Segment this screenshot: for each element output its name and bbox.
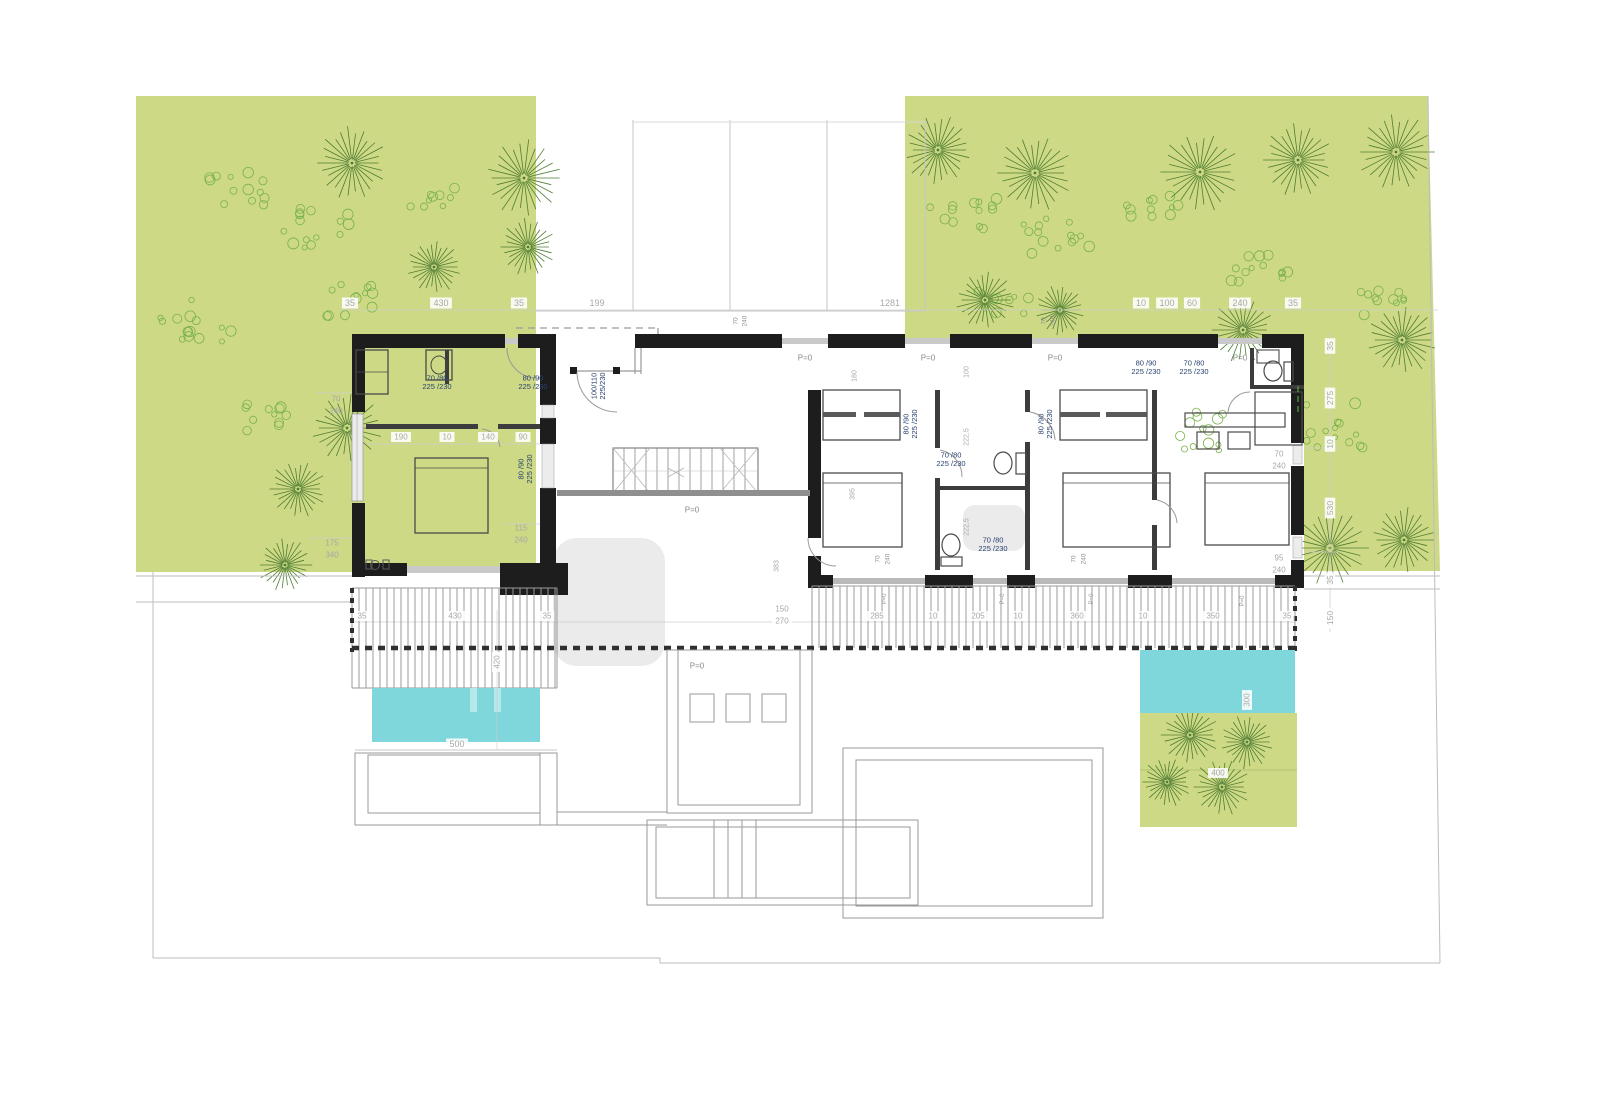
wardrobe-rail <box>864 412 900 417</box>
toilet-bowl <box>942 534 960 556</box>
dim-label: 10 <box>1136 611 1151 621</box>
wall-top <box>352 334 505 348</box>
bed <box>823 473 902 547</box>
door-post <box>570 367 577 374</box>
window-band <box>542 405 554 418</box>
dim-label: 70 <box>1041 317 1048 325</box>
dim-label-text: 70 <box>332 395 341 404</box>
dim-label-text: 35 <box>1288 298 1298 308</box>
tree-center <box>1401 339 1404 342</box>
dim-label: 10 <box>1011 611 1026 621</box>
level-label: P=0 <box>1000 593 1006 605</box>
dim-label: 199 <box>586 298 608 309</box>
level-label-text: P=0 <box>1233 354 1248 363</box>
door-spec-label-text: 225/230 <box>598 372 607 399</box>
dim-label-text: 350 <box>1206 612 1220 621</box>
dim-label-text: 35 <box>514 298 524 308</box>
dim-label: 175 <box>325 539 339 548</box>
window-band <box>1035 578 1128 584</box>
level-label-text: P=0 <box>685 506 700 515</box>
window-band <box>542 444 554 488</box>
dim-label-text: 70 <box>875 555 882 563</box>
tree-center <box>937 149 940 152</box>
window-band <box>1032 338 1078 344</box>
dim-label-text: 70 <box>1071 555 1078 563</box>
dim-label-text: 222,5 <box>964 518 971 536</box>
pool-right <box>1140 650 1295 713</box>
dim-label-text: 150 <box>775 605 789 614</box>
dim-label: 70 <box>332 395 341 404</box>
dim-label-text: 285 <box>870 612 884 621</box>
dim-label-text: 180 <box>852 370 859 382</box>
door-spec-label-text: 225 /230 <box>1179 367 1208 376</box>
dim-label: 70 <box>1275 450 1284 459</box>
dim-label-text: 222,5 <box>964 428 971 446</box>
dim-label: 240 <box>1081 553 1088 564</box>
door-spec-label: 70 /80225 /230 <box>422 374 451 392</box>
dim-label-text: 100 <box>964 366 971 378</box>
wall-top <box>1078 334 1218 348</box>
level-label-text: P=0 <box>690 662 705 671</box>
floor-plan-canvas: 3543035199128110100602403535275105303515… <box>0 0 1600 1112</box>
dim-label: 180 <box>852 370 859 382</box>
door-spec-label-text: 225 /230 <box>910 409 919 438</box>
partition-wall <box>1152 390 1157 500</box>
wardrobe-rail <box>1106 412 1147 417</box>
courtyard-outline <box>678 650 800 805</box>
dim-label-text: 35 <box>1283 612 1292 621</box>
door-arc <box>1157 500 1177 523</box>
tree-center <box>984 299 987 302</box>
dim-label: 500 <box>446 739 468 750</box>
wall-leftwing-right <box>540 418 556 444</box>
dim-label: 35 <box>1285 298 1301 309</box>
dim-label: 95 <box>1275 554 1284 563</box>
dim-label: 222,5 <box>964 518 971 536</box>
dim-label: 240 <box>1229 298 1251 309</box>
window-band <box>1218 338 1262 344</box>
lower-outline <box>843 748 1103 918</box>
dim-label-text: 10 <box>1014 612 1023 621</box>
shrub-mark <box>1203 425 1213 435</box>
door-spec-label-text: 225 /230 <box>1131 367 1160 376</box>
stool <box>1228 432 1250 449</box>
dim-label-text: 240 <box>742 315 749 326</box>
dim-label: 190 <box>391 432 411 442</box>
dim-label: 1281 <box>876 298 903 309</box>
dim-label: 240 <box>1272 566 1286 575</box>
dim-label-text: 70 <box>733 317 740 325</box>
tree-center <box>1199 171 1202 174</box>
dim-label-text: 70 <box>1041 317 1048 325</box>
tree-center <box>297 488 300 491</box>
dim-label: 240 <box>329 407 343 416</box>
dim-label: 350 <box>1203 611 1223 621</box>
dim-label-text: 270 <box>775 617 789 626</box>
dim-label-text: 199 <box>589 298 604 308</box>
dim-label-text: 175 <box>325 539 339 548</box>
dim-label: 360 <box>1067 611 1087 621</box>
level-label: P=0 <box>1240 595 1246 607</box>
dim-label: 285 <box>867 611 887 621</box>
dim-label: 90 <box>516 432 531 442</box>
planter-square <box>726 694 750 722</box>
bed <box>1205 473 1289 545</box>
dim-label: 10 <box>1325 436 1336 452</box>
window-band <box>505 338 518 344</box>
dim-label-text: 35 <box>1325 575 1335 585</box>
garden-right <box>905 96 1440 571</box>
dim-label-text: 300 <box>1243 693 1252 707</box>
dim-label-text: 10 <box>929 612 938 621</box>
dim-label: 35 <box>355 611 370 621</box>
door-spec-label-text: 225 /230 <box>422 382 451 391</box>
tree-center <box>1189 734 1192 737</box>
dim-label: 115 <box>515 524 528 533</box>
door-spec-label-text: 225 /230 <box>1045 409 1054 438</box>
dim-label: 35 <box>342 298 358 309</box>
lower-outline <box>656 827 910 898</box>
wall-top <box>828 334 905 348</box>
level-label-text: P=0 <box>882 593 888 605</box>
dim-label-text: 240 <box>1081 553 1088 564</box>
dim-label: 70 <box>875 555 882 563</box>
dim-label: 60 <box>1184 298 1200 309</box>
dim-label-text: 150 <box>1325 611 1335 625</box>
dim-label: 383 <box>774 560 781 572</box>
tree-center <box>523 177 526 180</box>
dim-label: 240 <box>885 553 892 564</box>
level-label: P=0 <box>690 662 705 671</box>
level-label-text: P=0 <box>1089 593 1095 605</box>
dim-label-text: 95 <box>1275 554 1284 563</box>
partition-wall <box>1250 385 1304 389</box>
level-label: P=0 <box>1233 354 1248 363</box>
dim-label-text: 90 <box>519 433 528 442</box>
door-spec-label: 80 /90225 /230 <box>1131 359 1160 377</box>
deck-boards-left <box>352 588 555 688</box>
level-label: P=0 <box>685 506 700 515</box>
dim-label-text: 115 <box>515 524 528 533</box>
tree-center <box>1034 172 1037 175</box>
dim-label-text: 240 <box>885 553 892 564</box>
tree-center <box>1166 781 1169 784</box>
dim-label-text: 10 <box>1139 612 1148 621</box>
dim-label-text: 35 <box>1325 341 1335 351</box>
dim-label-text: 340 <box>325 551 339 560</box>
door-spec-label-text: 225 /230 <box>518 382 547 391</box>
window-band <box>905 338 950 344</box>
dim-label-text: 240 <box>514 536 528 545</box>
window-band <box>782 338 828 344</box>
dim-label-text: 35 <box>543 612 552 621</box>
shrub-mark <box>1181 446 1187 452</box>
shrub-mark <box>1212 414 1223 425</box>
tree-center <box>433 266 436 269</box>
dim-label-text: 35 <box>358 612 367 621</box>
door-spec-label: 80 /90225 /230 <box>517 454 535 483</box>
wall-leftwing-right <box>540 488 556 565</box>
door-spec-label: 70 /80225 /230 <box>936 451 965 469</box>
shrub-mark <box>1176 431 1185 440</box>
toilet-tank <box>1016 453 1026 474</box>
door-spec-label: 80 /90225 /230 <box>902 409 920 438</box>
stool <box>1197 432 1219 449</box>
dim-label: 430 <box>430 298 452 309</box>
dim-label: 430 <box>445 611 465 621</box>
toilet-bowl <box>994 452 1012 474</box>
window-band <box>1172 578 1275 584</box>
tree-center <box>1395 151 1398 154</box>
door-spec-label: 100/110225/230 <box>590 372 608 399</box>
level-label: P=0 <box>882 593 888 605</box>
wall-right <box>1291 466 1304 535</box>
window-band <box>833 578 925 584</box>
wardrobe-rail <box>823 412 856 417</box>
dim-label: 420 <box>492 652 502 672</box>
floorplan-image: Residential villa ground floor plan with… <box>0 0 1600 1112</box>
door-spec-label: 80 /90225 /230 <box>1037 409 1055 438</box>
dim-label-text: 530 <box>1325 501 1335 515</box>
partition-wall <box>935 478 940 570</box>
dim-label-text: 35 <box>345 298 355 308</box>
dim-label: 35 <box>511 298 527 309</box>
door-arc <box>1228 392 1250 412</box>
shrub-mark <box>1190 444 1196 450</box>
dim-label-text: 140 <box>481 433 495 442</box>
dim-label-text: 240 <box>1232 298 1247 308</box>
partition-wall <box>366 424 478 429</box>
dim-label-text: 100 <box>1159 298 1174 308</box>
toilet-bowl <box>1264 361 1282 381</box>
dim-label: 70 <box>733 317 740 325</box>
dim-label: 275 <box>1325 388 1336 409</box>
dim-label-text: 1281 <box>880 298 900 308</box>
wall-top <box>1262 334 1304 348</box>
partition-wall <box>1025 390 1030 412</box>
tree-center <box>1246 741 1249 744</box>
dim-label: 530 <box>1325 498 1336 519</box>
tree-center <box>1221 786 1224 789</box>
pool-ladder <box>470 688 477 712</box>
dim-label: 10 <box>440 432 455 442</box>
dim-label: 100 <box>964 366 971 378</box>
level-label: P=0 <box>1089 593 1095 605</box>
pool-left <box>372 688 540 742</box>
wall-top <box>518 334 556 348</box>
door-spec-label: 80 /90225 /230 <box>518 374 547 392</box>
tree-center <box>527 246 530 249</box>
dim-label: 35 <box>1325 572 1336 588</box>
dim-label: 35 <box>1280 611 1295 621</box>
toilet-tank <box>941 557 962 566</box>
dim-label: 270 <box>772 616 792 626</box>
wall-left <box>352 334 365 412</box>
wall-top <box>950 334 1032 348</box>
door-spec-label-text: 225 /230 <box>978 544 1007 553</box>
tree-center <box>1242 329 1245 332</box>
partition-wall <box>1250 348 1254 388</box>
dim-label: 140 <box>478 432 498 442</box>
dim-label: 10 <box>926 611 941 621</box>
partition-wall <box>937 486 1027 490</box>
dim-label-text: 240 <box>1272 462 1286 471</box>
level-label-text: P=0 <box>1240 595 1246 607</box>
window-band <box>1293 445 1302 464</box>
dim-label: 35 <box>1325 338 1336 354</box>
shrub-mark <box>1185 418 1195 428</box>
level-label-text: P=0 <box>1048 354 1063 363</box>
wall-right <box>1291 560 1304 577</box>
wardrobe-rail <box>1060 412 1100 417</box>
dim-label-text: 430 <box>433 298 448 308</box>
dim-label: 70 <box>1071 555 1078 563</box>
dim-label: 35 <box>540 611 555 621</box>
lower-outline <box>355 753 557 825</box>
wall-rightwing-left <box>808 556 821 577</box>
tree-center <box>1403 539 1406 542</box>
dim-label-text: 240 <box>1272 566 1286 575</box>
dim-label-text: 383 <box>774 560 781 572</box>
partition-wall <box>935 390 940 448</box>
watermark-blob <box>553 538 665 666</box>
dim-label-text: 500 <box>449 739 464 749</box>
planter-square <box>690 694 714 722</box>
window-band <box>407 566 500 573</box>
dim-label: 240 <box>742 315 749 326</box>
level-label: P=0 <box>798 354 813 363</box>
level-label: P=0 <box>1048 354 1063 363</box>
courtyard-outline <box>667 650 812 813</box>
dim-label-text: 240 <box>1050 315 1057 326</box>
dim-label-text: 240 <box>329 407 343 416</box>
dim-label: 205 <box>968 611 988 621</box>
level-label-text: P=0 <box>1000 593 1006 605</box>
dim-label: 340 <box>325 551 339 560</box>
tree-center <box>284 564 287 567</box>
door-spec-label-text: 225 /230 <box>936 459 965 468</box>
dim-label-text: 430 <box>448 612 462 621</box>
dim-label-text: 10 <box>443 433 452 442</box>
dim-label: 150 <box>772 604 792 614</box>
dim-label-text: 10 <box>1136 298 1146 308</box>
level-label: P=0 <box>921 354 936 363</box>
lower-outline <box>368 755 540 813</box>
dim-label: 100 <box>1156 298 1178 309</box>
door-spec-label-text: 225 /230 <box>525 454 534 483</box>
lower-outline <box>647 820 918 905</box>
door-spec-label: 70 /80225 /230 <box>978 536 1007 554</box>
dim-label-text: 10 <box>1325 439 1335 449</box>
dim-label-text: 190 <box>394 433 408 442</box>
dim-label: 240 <box>1272 462 1286 471</box>
shrub-mark <box>1216 442 1221 447</box>
dim-label: 300 <box>1242 690 1252 710</box>
dim-label-text: 420 <box>493 655 502 669</box>
dim-label: 240 <box>514 536 528 545</box>
wall-top <box>635 334 782 348</box>
pool-ladder <box>494 688 501 712</box>
site-boundary-bottom <box>153 958 1440 963</box>
level-label-text: P=0 <box>921 354 936 363</box>
lower-outline <box>856 760 1092 906</box>
dim-label: 222,5 <box>964 428 971 446</box>
level-label-text: P=0 <box>798 354 813 363</box>
corridor-wall <box>557 490 810 496</box>
dim-label: 400 <box>1208 768 1228 778</box>
dim-label-text: 60 <box>1187 298 1197 308</box>
dim-label: 150 <box>1325 608 1336 629</box>
dim-label-text: 205 <box>971 612 985 621</box>
dim-label: 395 <box>850 488 857 500</box>
door-post <box>613 367 620 374</box>
window-band <box>973 578 1007 584</box>
dim-label: 10 <box>1133 298 1149 309</box>
tree-center <box>351 162 354 165</box>
dim-label-text: 395 <box>850 488 857 500</box>
dim-label-text: 70 <box>1275 450 1284 459</box>
window-band <box>1293 537 1302 558</box>
tree-center <box>346 427 349 430</box>
dim-label-text: 360 <box>1070 612 1084 621</box>
door-spec-label: 70 /80225 /230 <box>1179 359 1208 377</box>
tree-center <box>1297 159 1300 162</box>
dim-label-text: 275 <box>1325 391 1335 405</box>
planter-square <box>762 694 786 722</box>
dim-label: 240 <box>1050 315 1057 326</box>
dim-label-text: 400 <box>1211 769 1225 778</box>
window-left <box>352 414 363 501</box>
shrub-mark <box>1203 438 1213 448</box>
wall-rightwing-left <box>808 390 821 538</box>
partition-wall <box>498 424 540 429</box>
